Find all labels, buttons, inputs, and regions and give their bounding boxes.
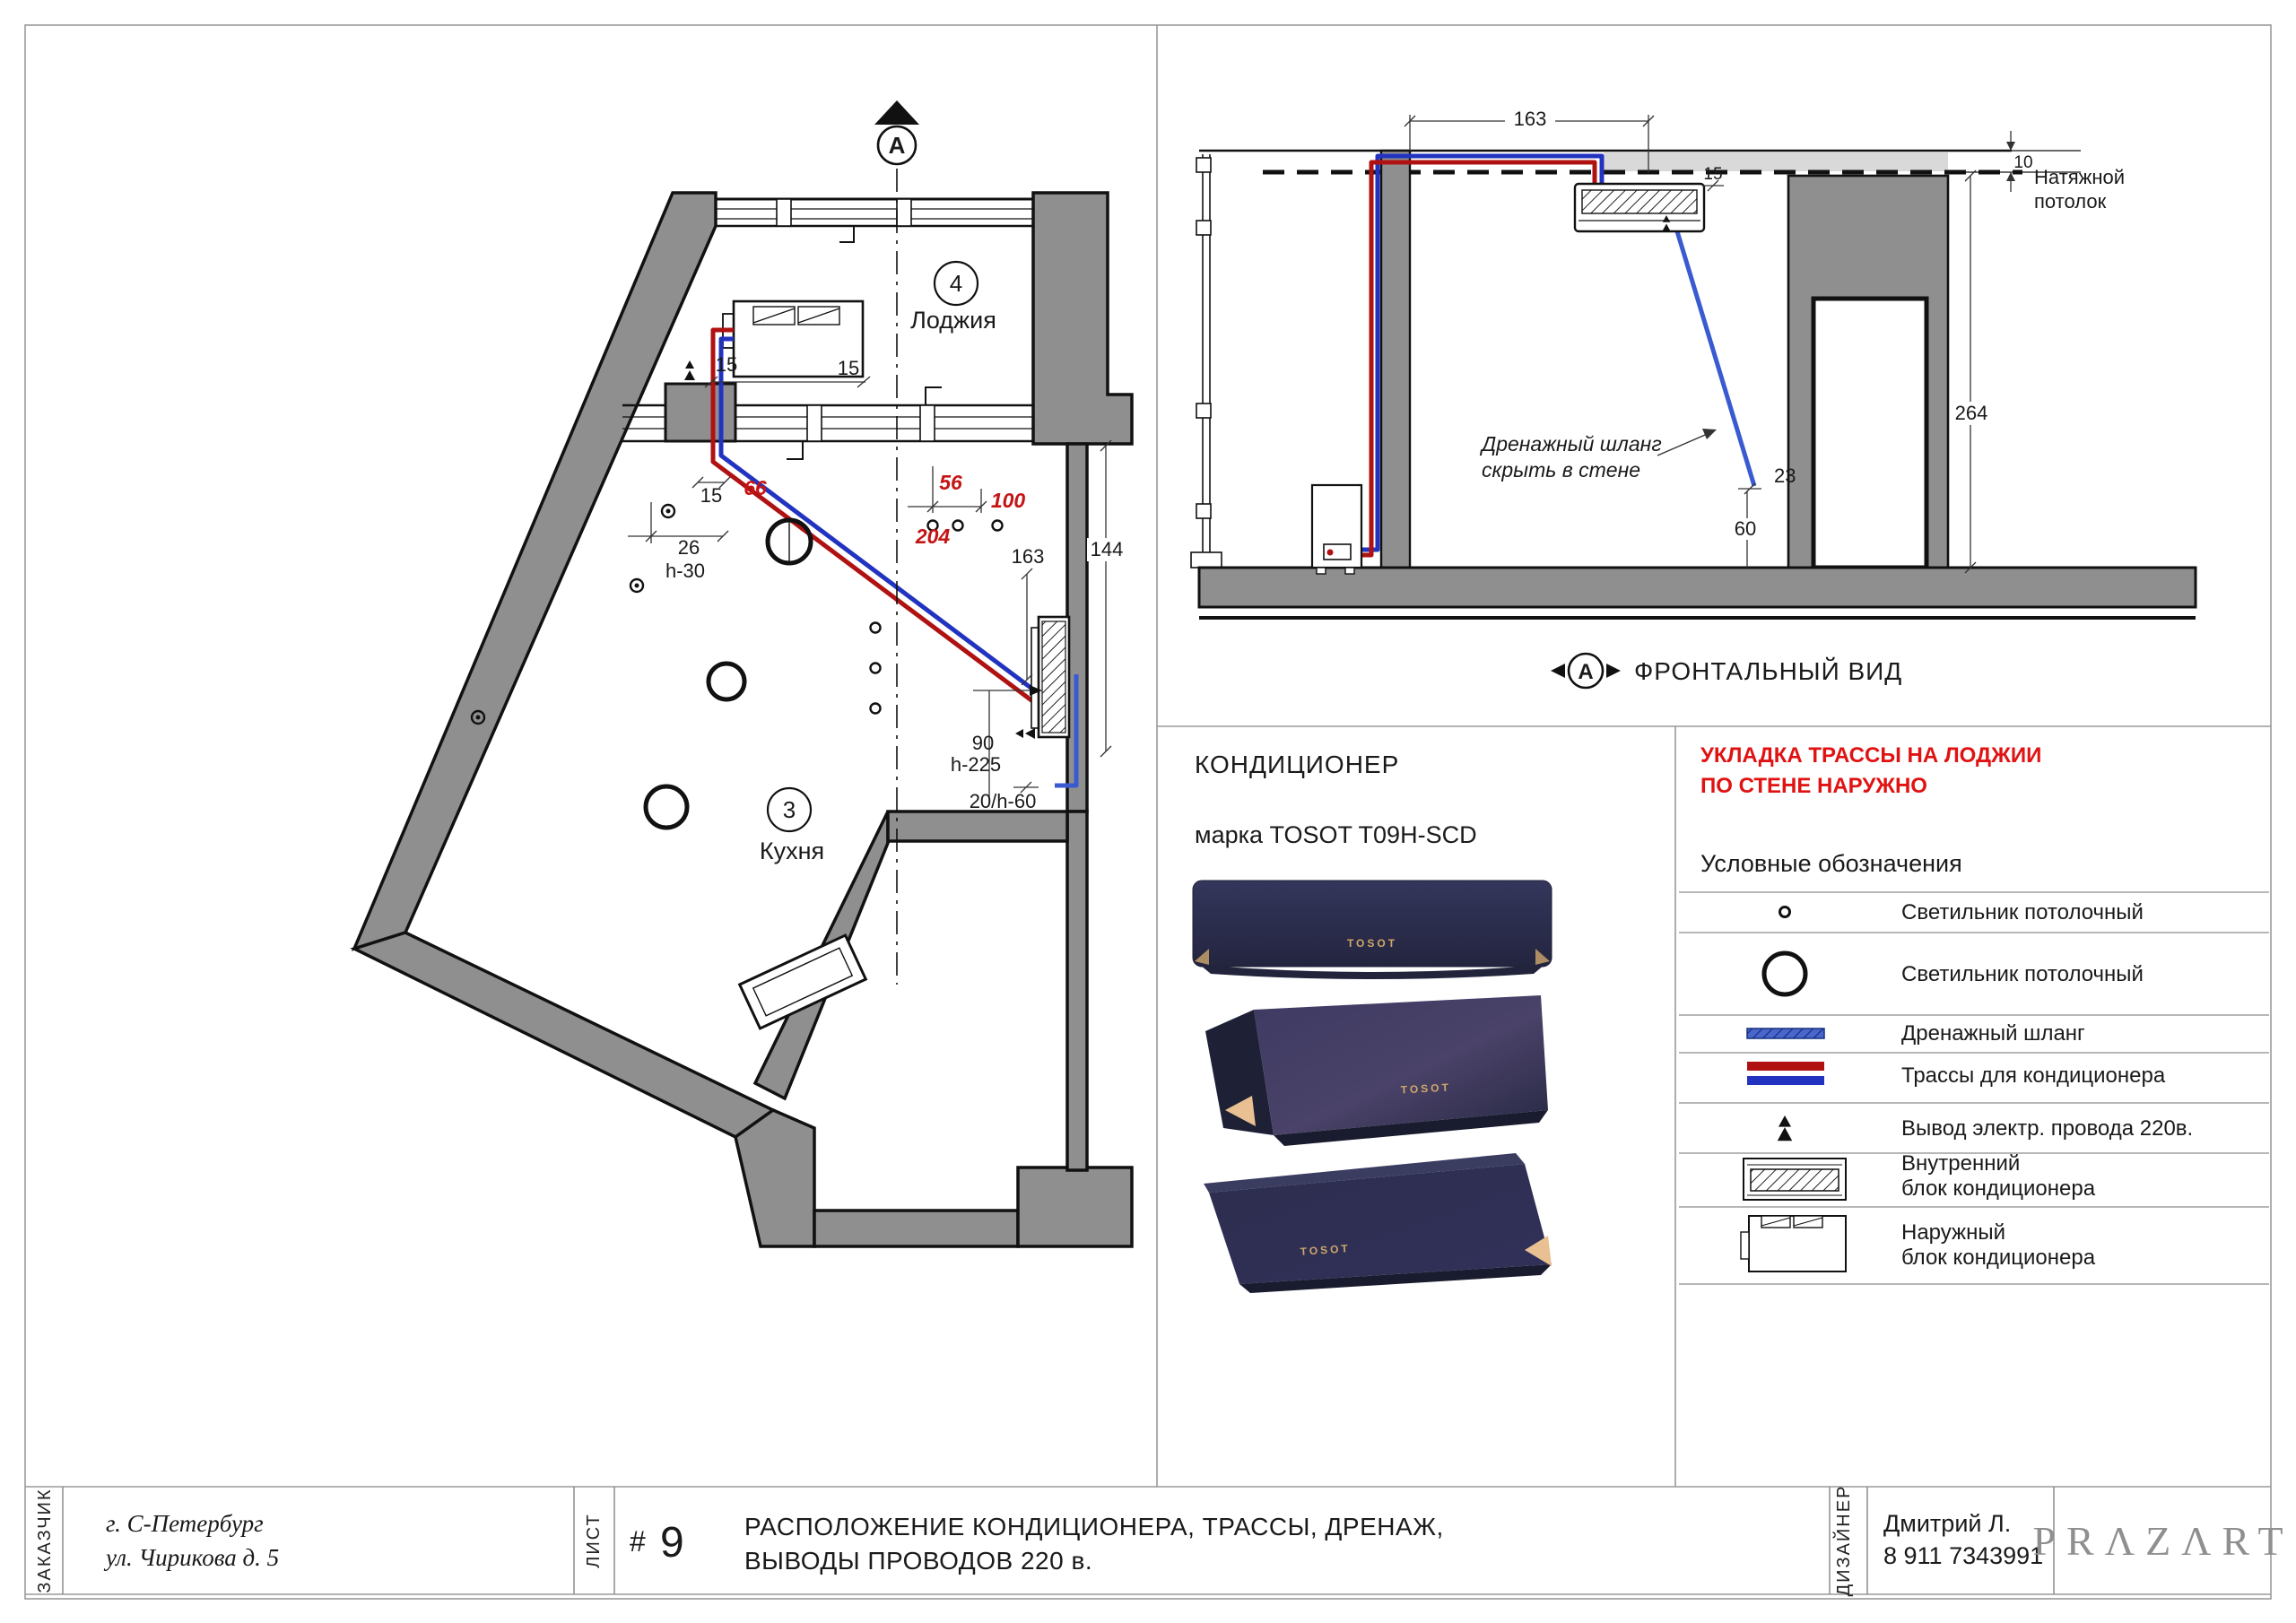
- prazart-logo: PRΛZΛRT: [2032, 1518, 2293, 1564]
- room-name: Кухня: [760, 838, 824, 864]
- dim-h30: h-30: [665, 560, 705, 582]
- dim-26: 26: [678, 536, 700, 559]
- legend-row-label2: блок кондиционера: [1901, 1176, 2096, 1201]
- unit-info: КОНДИЦИОНЕР марка TOSOT T09H-SCD TOSOT T…: [1193, 751, 1552, 1293]
- stretch-ceiling-label-2: потолок: [2034, 190, 2107, 213]
- dim-90: 90: [972, 732, 994, 754]
- dim-144: 144: [1091, 538, 1124, 560]
- room-name: Лоджия: [910, 307, 996, 334]
- red-note-line-2: ПО СТЕНЕ НАРУЖНО: [1700, 774, 1927, 798]
- frontal-view-label: A ФРОНТАЛЬНЫЙ ВИД: [1551, 654, 1902, 688]
- indoor-unit-plan: [1015, 617, 1069, 739]
- customer-label: ЗАКАЗЧИК: [35, 1488, 55, 1593]
- dim-15-front: 15: [1703, 165, 1722, 184]
- divider-band: [622, 384, 1033, 459]
- floor-plan: A 4 Лоджия 3 Кухня: [354, 100, 1132, 1246]
- drawing-sheet: A 4 Лоджия 3 Кухня: [0, 0, 2296, 1623]
- power-outlet-220v-icon: [1015, 728, 1035, 739]
- dim-20h60: 20/h-60: [970, 790, 1037, 812]
- legend-title: Условные обозначения: [1700, 850, 1962, 877]
- sheet-number: 9: [660, 1519, 684, 1567]
- dim-100: 100: [991, 489, 1026, 512]
- power-outlet-220v-icon: [1779, 1116, 1791, 1140]
- door-opening: [1813, 299, 1926, 568]
- product-photo-front: TOSOT: [1193, 881, 1552, 979]
- brand-logo: TOSOT: [1400, 1081, 1451, 1097]
- trace-red-icon: [1747, 1062, 1824, 1071]
- loggia-window: [716, 199, 1033, 242]
- dim-60: 60: [1735, 517, 1756, 540]
- brand-logo: TOSOT: [1347, 937, 1397, 950]
- trace-blue-icon: [1747, 1076, 1824, 1085]
- frontal-view: 163 15 10 264 23 60 Натяжной потолок Дре…: [1191, 106, 2196, 688]
- legend-labels: Светильник потолочный Светильник потолоч…: [1901, 900, 2193, 1270]
- sheet-title-line-1: РАСПОЛОЖЕНИЕ КОНДИЦИОНЕРА, ТРАССЫ, ДРЕНА…: [744, 1513, 1444, 1541]
- red-note-line-1: УКЛАДКА ТРАССЫ НА ЛОДЖИИ: [1700, 743, 2041, 768]
- outdoor-unit-icon: [1741, 1216, 1846, 1271]
- dim-56: 56: [939, 471, 962, 494]
- dim-15b: 15: [838, 357, 859, 379]
- designer-label: ДИЗАЙНЕР: [1832, 1485, 1854, 1597]
- title-block: ЗАКАЗЧИК г. С-Петербург ул. Чирикова д. …: [35, 1485, 2294, 1597]
- big-light-icon: [1764, 953, 1805, 994]
- indoor-unit-icon: [1744, 1159, 1846, 1200]
- view-marker: A: [1578, 660, 1593, 684]
- legend: Условные обозначения: [1679, 850, 2269, 1284]
- legend-row-label: Наружный: [1901, 1220, 2005, 1245]
- dim-h225: h-225: [951, 753, 1001, 776]
- indoor-unit-front: [1575, 184, 1704, 232]
- legend-row-label2: блок кондиционера: [1901, 1245, 2096, 1270]
- notes: УКЛАДКА ТРАССЫ НА ЛОДЖИИ ПО СТЕНЕ НАРУЖН…: [1700, 743, 2041, 798]
- spot-light-icon: [1780, 907, 1790, 917]
- designer-name: Дмитрий Л.: [1883, 1510, 2011, 1537]
- dim-23: 23: [1774, 464, 1796, 487]
- customer-street: ул. Чирикова д. 5: [103, 1544, 279, 1571]
- product-photo-perspective-2: TOSOT: [1204, 1153, 1552, 1293]
- dim-204: 204: [915, 525, 951, 548]
- customer-city: г. С-Петербург: [106, 1510, 264, 1537]
- legend-row-label: Светильник потолочный: [1901, 900, 2144, 924]
- legend-row-label: Внутренний: [1901, 1151, 2020, 1176]
- ceiling-band: [1604, 152, 1948, 171]
- dim-10: 10: [2013, 153, 2032, 172]
- legend-row-label: Трассы для кондиционера: [1901, 1063, 2166, 1088]
- legend-symbols: [1741, 907, 1846, 1272]
- sheet-svg: A 4 Лоджия 3 Кухня: [0, 0, 2296, 1623]
- dim-264: 264: [1955, 402, 1988, 424]
- dim-163-front: 163: [1514, 108, 1547, 130]
- unit-info-title: КОНДИЦИОНЕР: [1195, 751, 1399, 778]
- room-number: 3: [783, 796, 796, 823]
- drain-hose-icon: [1747, 1028, 1824, 1038]
- drain-note-1: Дренажный шланг: [1479, 432, 1662, 456]
- drain-front: [1677, 231, 1754, 486]
- sheet-title-line-2: ВЫВОДЫ ПРОВОДОВ 220 в.: [744, 1547, 1092, 1575]
- dim-163-plan: 163: [1012, 545, 1045, 568]
- power-outlet-220v-icon: [684, 360, 695, 380]
- drain-note-2: скрыть в стене: [1482, 458, 1640, 482]
- legend-row-label: Дренажный шланг: [1901, 1021, 2085, 1046]
- stretch-ceiling-label-1: Натяжной: [2034, 166, 2125, 188]
- dim-15a: 15: [716, 353, 737, 376]
- designer-phone: 8 911 7343991: [1883, 1542, 2043, 1569]
- product-photo-perspective-1: TOSOT: [1205, 995, 1548, 1146]
- section-marker-label: A: [889, 132, 906, 159]
- legend-row-label: Вывод электр. провода 220в.: [1901, 1116, 2193, 1141]
- outdoor-unit-front: [1312, 485, 1361, 574]
- unit-info-model: марка TOSOT T09H-SCD: [1195, 821, 1477, 848]
- view-title: ФРОНТАЛЬНЫЙ ВИД: [1634, 657, 1902, 685]
- title-block-grid: [63, 1487, 2054, 1594]
- dim-15c: 15: [700, 484, 722, 507]
- room-kitchen-marker: 3 Кухня: [760, 788, 824, 864]
- room-number: 4: [950, 270, 962, 297]
- sheet-hash: #: [630, 1525, 646, 1558]
- room-loggia-marker: 4 Лоджия: [910, 262, 996, 334]
- sheet-label: ЛИСТ: [584, 1513, 604, 1568]
- dim-66: 66: [744, 476, 767, 499]
- left-wall: [1381, 151, 1410, 568]
- legend-row-label: Светильник потолочный: [1901, 962, 2144, 986]
